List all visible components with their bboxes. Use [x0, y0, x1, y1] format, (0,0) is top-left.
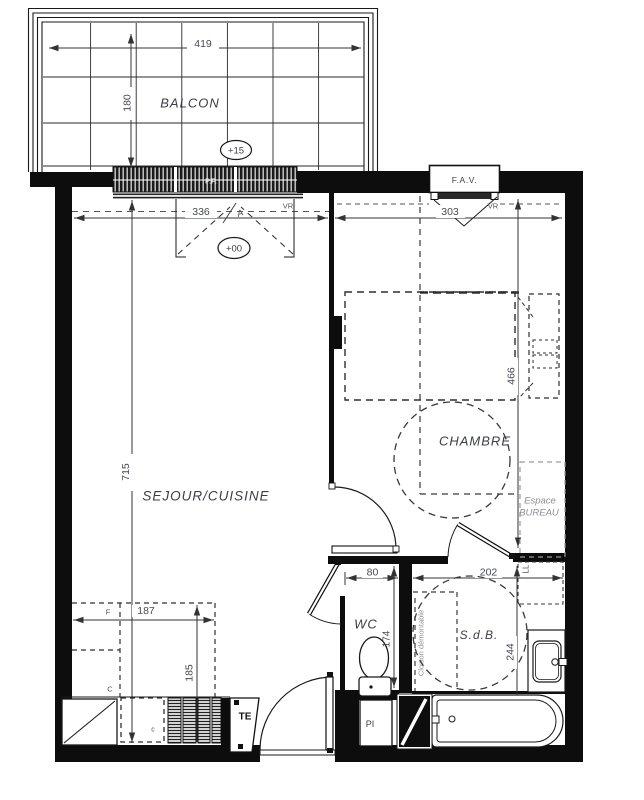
- level-mark-living: +00: [218, 238, 250, 259]
- dim-bedroom-depth-text: 466: [506, 367, 518, 385]
- wardrobe: [518, 294, 559, 398]
- vanity-faucet: [559, 659, 567, 666]
- wc-door-arc: [309, 614, 341, 624]
- dim-balcony-depth: 180: [121, 34, 134, 167]
- living-room: +00 SEJOUR/CUISINE 715: [119, 199, 294, 743]
- oven-mark: c: [151, 727, 155, 734]
- dim-kitchen-depth-text: 185: [184, 664, 196, 682]
- wall-bottom-left: [55, 745, 260, 762]
- bedroom-label: CHAMBRE: [439, 434, 511, 449]
- entry-door: [260, 672, 335, 755]
- pi-closet: PI: [360, 700, 392, 746]
- dim-living-depth: 715: [119, 200, 135, 743]
- dim-wc-width-text: 80: [367, 567, 379, 579]
- bedroom-door-arc: [334, 487, 396, 549]
- living-label: SEJOUR/CUISINE: [142, 489, 269, 504]
- kitchen-appliances: c TE: [62, 698, 259, 752]
- entry-door-leaf: [326, 677, 333, 750]
- wall-top-mid: [297, 171, 429, 193]
- bath-label: S.d.B.: [460, 628, 499, 642]
- dim-kitchen-width-text: 187: [137, 605, 155, 617]
- balcony: 419 180 BALCON +15: [29, 9, 378, 173]
- bedroom: CHAMBRE 466 Espace BUREAU: [345, 196, 565, 557]
- office-area: Espace BUREAU: [519, 462, 565, 557]
- wall-top-left: [30, 172, 115, 187]
- wall-wc-bath-partition: [399, 556, 412, 693]
- te-label: TE: [239, 712, 252, 723]
- wall-left: [55, 185, 72, 762]
- level-living-text: +00: [226, 244, 242, 255]
- office-label-2: BUREAU: [519, 508, 559, 519]
- fav-label: F.A.V.: [452, 175, 478, 185]
- washer-label: LL: [522, 564, 531, 573]
- entry-door-arc: [260, 677, 333, 750]
- vr-living-label: VR: [283, 202, 294, 211]
- dim-balcony-width-text: 419: [194, 38, 212, 50]
- closet-mark: C: [107, 685, 113, 694]
- bedroom-door: [329, 483, 399, 553]
- dim-living-depth-text: 715: [120, 463, 132, 481]
- pi-label: PI: [366, 719, 375, 729]
- duct: [397, 694, 432, 749]
- washer-zone: LL: [518, 562, 563, 604]
- level-mark-balcony: +15: [221, 141, 252, 160]
- dim-kitchen-width: 187: [73, 605, 214, 623]
- wall-hall: [328, 556, 448, 564]
- wall-wc-west: [340, 596, 345, 693]
- office-label-1: Espace: [524, 496, 556, 507]
- vanity: [528, 630, 567, 692]
- radiator-unit: [168, 698, 221, 743]
- walls: [30, 171, 583, 762]
- dim-bedroom-width: 303 VR: [335, 202, 563, 222]
- dim-wc-depth-text: 174: [382, 630, 393, 647]
- wall-right: [565, 171, 583, 762]
- wall-pilaster: [329, 316, 342, 349]
- turning-circle-bedroom: [394, 402, 510, 518]
- bathtub: [430, 695, 563, 747]
- dim-bath-width: 202: [413, 566, 563, 581]
- dim-wc-width: 80: [345, 566, 398, 585]
- wc-label: WC: [354, 617, 378, 632]
- dim-bedroom-depth: 466: [505, 199, 521, 548]
- partition-label: Cloison démontable: [417, 610, 426, 676]
- te-box: TE: [230, 698, 259, 752]
- dim-balcony-width: 419: [49, 37, 361, 51]
- oven-unit: [121, 698, 164, 742]
- bath-door-arc: [448, 524, 458, 557]
- floor-plan-drawing: 419 180 BALCON +15 P.F. F.A.V. 336 A V: [0, 0, 644, 800]
- dim-bath-depth-text: 244: [505, 643, 517, 661]
- fridge-mark: F: [106, 608, 111, 617]
- vr-bedroom-label: VR: [488, 202, 499, 211]
- window-pf: P.F.: [113, 167, 303, 198]
- bedroom-door-leaf: [332, 546, 397, 553]
- dim-living-width: 336 A VR: [72, 202, 329, 224]
- balcony-label: BALCON: [160, 96, 219, 111]
- floor-plan-page: 419 180 BALCON +15 P.F. F.A.V. 336 A V: [0, 0, 644, 800]
- kitchen: F C 187 185 c TE: [62, 603, 259, 752]
- level-balcony-text: +15: [228, 146, 244, 157]
- wall-entry-pillar: [335, 690, 359, 762]
- pf-label: P.F.: [205, 177, 217, 186]
- dim-bedroom-width-text: 303: [441, 206, 459, 218]
- bed: [345, 292, 515, 400]
- dim-living-width-text: 336: [192, 206, 210, 218]
- dim-balcony-depth-text: 180: [122, 94, 134, 112]
- balcony-railing: [29, 9, 378, 173]
